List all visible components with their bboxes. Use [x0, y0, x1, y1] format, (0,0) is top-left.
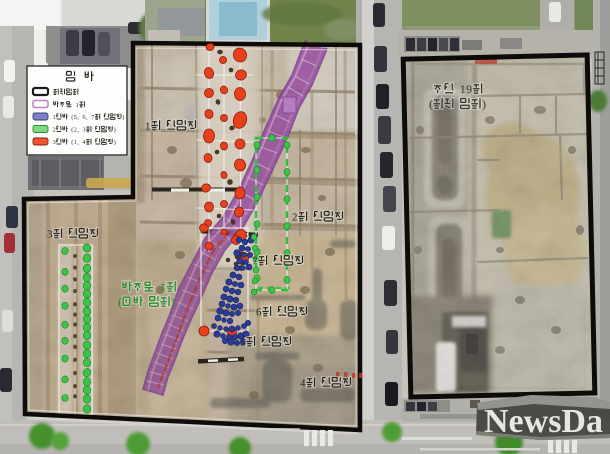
svg-text:6: 6 — [256, 307, 262, 319]
svg-text:(: ( — [118, 296, 122, 309]
svg-text:1: 1 — [460, 83, 466, 96]
svg-text:1: 1 — [145, 121, 151, 133]
svg-text:3: 3 — [53, 139, 56, 146]
svg-text:2: 2 — [53, 127, 56, 134]
svg-text:5: 5 — [240, 337, 246, 349]
svg-text:): ) — [114, 127, 116, 134]
svg-text:4: 4 — [300, 378, 306, 390]
svg-text:1: 1 — [53, 114, 56, 121]
svg-text:3: 3 — [47, 229, 53, 241]
svg-text:2: 2 — [292, 212, 298, 224]
svg-text:): ) — [122, 114, 124, 121]
svg-text:3: 3 — [82, 127, 85, 134]
svg-text:1: 1 — [160, 281, 166, 294]
svg-text:9: 9 — [466, 83, 472, 96]
svg-text:): ) — [171, 296, 175, 309]
svg-text:(: ( — [429, 98, 433, 111]
svg-text:): ) — [482, 98, 486, 111]
svg-text:): ) — [114, 139, 116, 146]
svg-text:NewsDa: NewsDa — [484, 403, 603, 440]
svg-text:1: 1 — [76, 102, 79, 109]
svg-text:7: 7 — [252, 256, 258, 268]
